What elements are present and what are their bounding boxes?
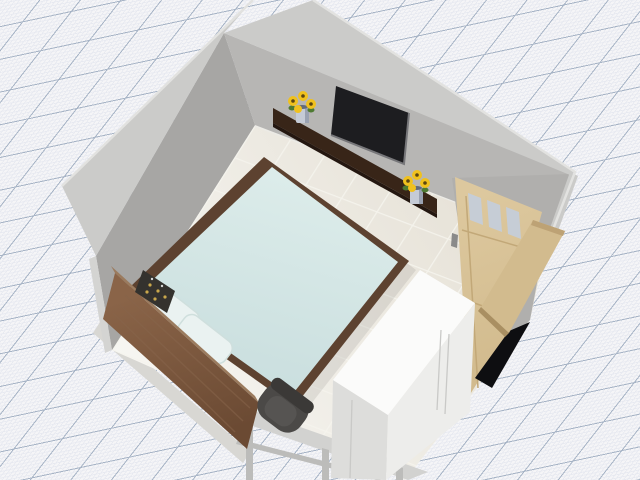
desk-leg [322,448,329,480]
panel-dot [156,289,159,292]
panel-dot [161,285,163,287]
sunflower-center [415,173,419,177]
sunflower-center [423,181,427,185]
sunflower-center [301,94,305,98]
sunflower [294,105,302,113]
room-scene [0,0,640,480]
sunflower-center [309,102,313,106]
door-handle[interactable] [451,233,458,248]
leaf-icon [422,188,429,193]
panel-dot [145,290,148,293]
sunflower-center [291,99,295,103]
panel-dot [153,297,156,300]
sunflower [408,184,416,192]
panel-dot [151,278,153,280]
panel-dot [163,295,166,298]
sunflower-center [406,179,410,183]
room-planner-3d-viewport[interactable] [0,0,640,480]
panel-dot [148,283,151,286]
